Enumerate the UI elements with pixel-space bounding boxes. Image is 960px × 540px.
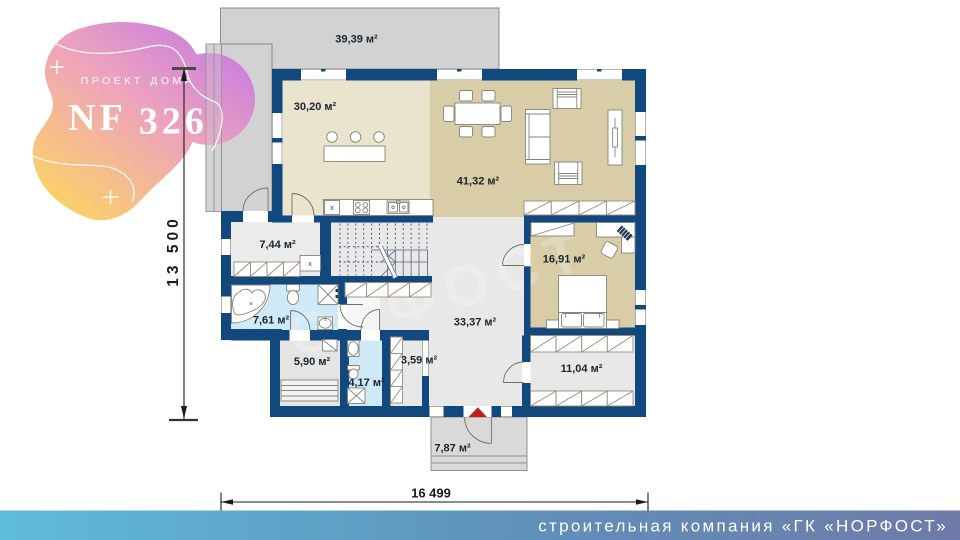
svg-text:7,44 м²: 7,44 м² (259, 239, 296, 251)
svg-text:7,61 м²: 7,61 м² (253, 315, 290, 327)
svg-text:3,59 м²: 3,59 м² (401, 355, 438, 367)
svg-text:x: x (330, 205, 334, 212)
svg-text:11,04 м²: 11,04 м² (561, 363, 603, 375)
svg-text:x: x (308, 261, 312, 268)
svg-text:39,39 м²: 39,39 м² (335, 34, 378, 46)
svg-text:13 500: 13 500 (165, 215, 182, 286)
svg-text:строительная компания «ГК «НОР: строительная компания «ГК «НОРФОСТ» (538, 517, 948, 536)
svg-text:33,37 м²: 33,37 м² (454, 317, 497, 329)
svg-text:41,32 м²: 41,32 м² (457, 176, 500, 188)
svg-text:16,91 м²: 16,91 м² (543, 254, 586, 266)
svg-text:4,17 м²: 4,17 м² (348, 377, 385, 389)
svg-text:30,20 м²: 30,20 м² (294, 101, 337, 113)
svg-text:ПРОЕКТ ДОМА: ПРОЕКТ ДОМА (81, 75, 195, 87)
svg-text:5,90 м²: 5,90 м² (294, 356, 331, 368)
svg-text:16 499: 16 499 (411, 486, 451, 501)
svg-text:NF 326: NF 326 (68, 97, 208, 143)
svg-text:7,87 м²: 7,87 м² (434, 443, 471, 455)
